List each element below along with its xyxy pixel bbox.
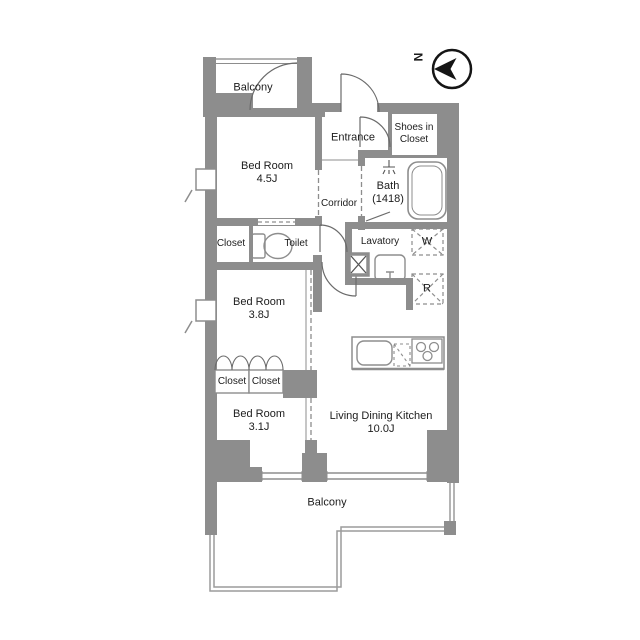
entrance-label: Entrance [331,132,375,145]
toilet-door-arc [320,225,347,252]
bedroom-45-label: Bed Room 4.5J [241,160,293,186]
balcony-north-label: Balcony [233,82,272,95]
closet-east-label: Closet [252,376,280,388]
floor-plan: Balcony Bed Room 4.5J Entrance Shoes in … [0,0,640,640]
fixtures-layer [0,0,640,640]
fence-post [444,521,456,535]
kitchen-counter [352,337,444,369]
washer-space-label: W [422,236,432,249]
toilet-hanging-wall [258,219,295,225]
bedroom-31-size: 3.1J [233,421,285,434]
ldk-name: Living Dining Kitchen [330,410,433,423]
south-windows [262,471,427,481]
bedroom-38-size: 3.8J [233,309,285,322]
shoes-closet-label: Shoes in Closet [395,122,434,146]
closet-west-label: Closet [218,376,246,388]
closet-north-label: Closet [217,238,245,250]
shower-icon [383,160,395,174]
entrance-door-arc [341,74,379,112]
bath-size: (1418) [372,193,404,206]
bedroom-45-size: 4.5J [241,173,293,186]
washbasin [375,255,405,281]
ldk-label: Living Dining Kitchen 10.0J [330,410,433,436]
meter-box [349,254,368,275]
bath-door-flap [366,212,390,221]
balcony-south-label: Balcony [307,497,346,510]
bedroom-38-name: Bed Room [233,296,285,309]
lavatory-label: Lavatory [361,236,399,248]
west-windows [185,169,216,333]
north-label: N [413,53,426,62]
north-compass-icon [433,50,471,88]
shoes-closet-line2: Closet [395,134,434,146]
ldk-size: 10.0J [330,423,433,436]
bedroom-45-name: Bed Room [241,160,293,173]
bath-label: Bath (1418) [372,180,404,206]
bathtub [408,162,446,219]
shoes-closet-line1: Shoes in [395,122,434,134]
bedroom-31-label: Bed Room 3.1J [233,408,285,434]
toilet-label: Toilet [284,238,307,250]
refrigerator-space-label: R [423,283,431,296]
corridor-label: Corridor [321,198,357,210]
bath-name: Bath [372,180,404,193]
bedroom-38-label: Bed Room 3.8J [233,296,285,322]
bedroom-31-name: Bed Room [233,408,285,421]
balcony-north-railing [216,59,297,64]
bifold-door-arcs [215,356,283,370]
